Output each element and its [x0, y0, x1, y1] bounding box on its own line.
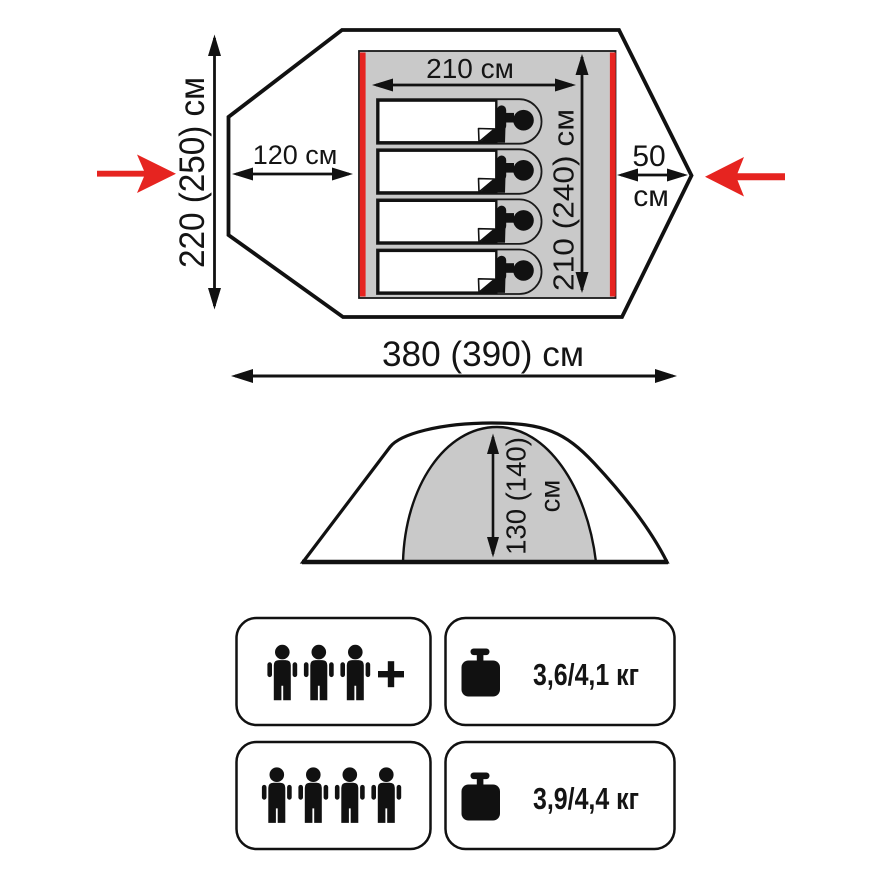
svg-text:см: см — [535, 480, 566, 513]
svg-text:130 (140): 130 (140) — [501, 437, 532, 555]
svg-text:3,6/4,1 кг: 3,6/4,1 кг — [533, 657, 639, 692]
svg-text:210 см: 210 см — [426, 53, 514, 84]
svg-text:см: см — [633, 180, 669, 213]
svg-text:50: 50 — [632, 140, 665, 173]
svg-text:220 (250) см: 220 (250) см — [173, 77, 212, 268]
svg-text:380 (390) см: 380 (390) см — [382, 335, 584, 374]
svg-text:120 см: 120 см — [253, 140, 338, 170]
svg-text:3,9/4,4 кг: 3,9/4,4 кг — [533, 781, 639, 816]
svg-text:210 (240) см: 210 (240) см — [549, 109, 581, 291]
